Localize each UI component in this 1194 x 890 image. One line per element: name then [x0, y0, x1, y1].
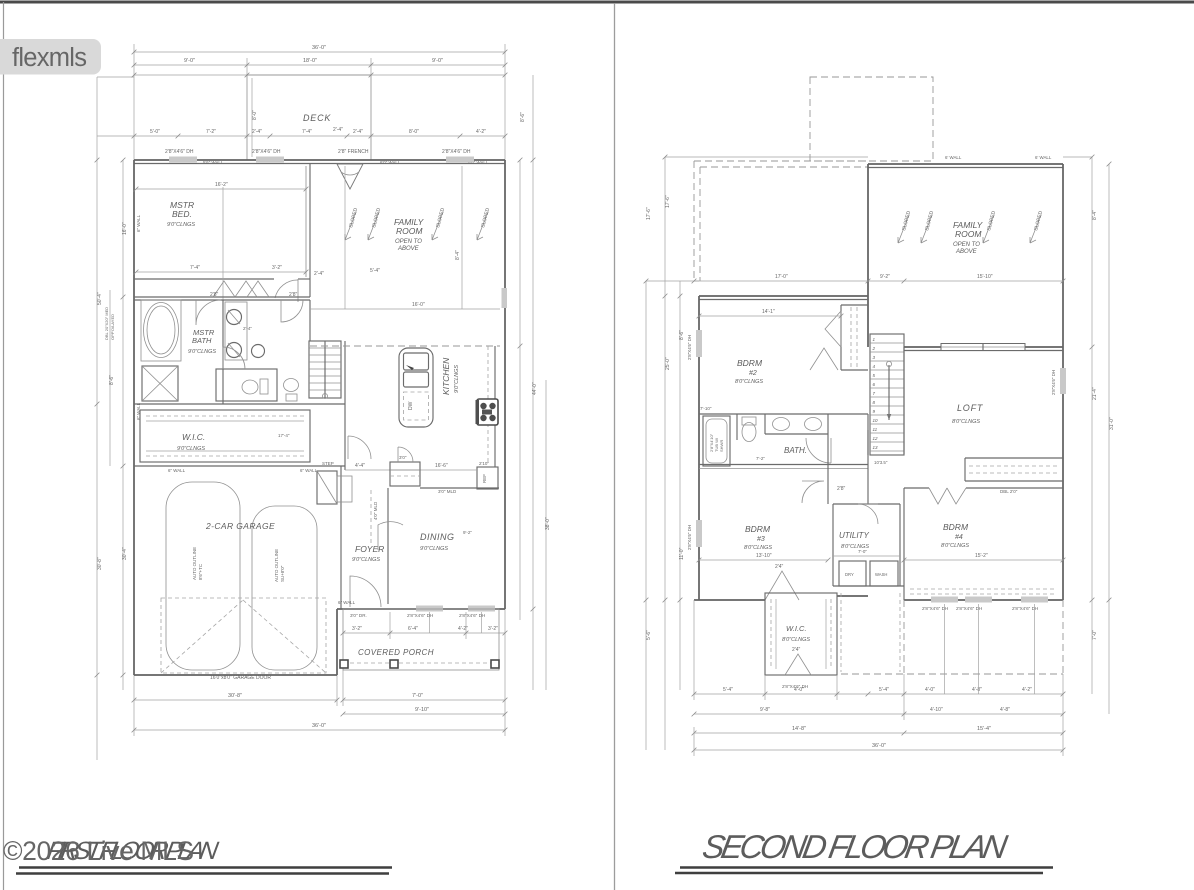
svg-text:BED.: BED. [172, 209, 192, 219]
svg-text:10: 10 [873, 418, 879, 423]
svg-text:STEP: STEP [322, 461, 334, 466]
svg-text:AUTO OUTLINE: AUTO OUTLINE [192, 547, 197, 580]
svg-text:7'-0": 7'-0" [412, 693, 423, 699]
svg-text:13: 13 [873, 445, 879, 450]
svg-text:5'-4": 5'-4" [723, 687, 733, 693]
svg-text:5'-6": 5'-6" [646, 630, 652, 640]
svg-text:7'-0": 7'-0" [858, 549, 867, 554]
svg-text:8'-0": 8'-0" [409, 129, 419, 135]
svg-text:50'-4": 50'-4" [97, 292, 103, 305]
svg-text:6" WALL: 6" WALL [168, 468, 186, 473]
svg-text:9'0"CLNGS: 9'0"CLNGS [352, 557, 380, 563]
svg-text:8'-6": 8'-6" [520, 112, 526, 122]
svg-text:2'-4": 2'-4" [243, 326, 252, 331]
svg-text:#4: #4 [955, 534, 963, 541]
svg-text:2'8" FRENCH: 2'8" FRENCH [338, 149, 369, 155]
svg-text:©2026 Live MLS: ©2026 Live MLS [3, 836, 194, 866]
svg-text:8'0"CLNGS: 8'0"CLNGS [735, 379, 763, 385]
svg-text:#3: #3 [757, 536, 765, 543]
svg-text:DW: DW [408, 401, 414, 410]
svg-text:2'4": 2'4" [775, 564, 784, 570]
svg-text:8'0"CLNGS: 8'0"CLNGS [744, 545, 772, 551]
svg-text:8'-0": 8'-0" [252, 110, 258, 120]
svg-text:6" WALL: 6" WALL [136, 402, 141, 420]
svg-text:4'-8": 4'-8" [972, 687, 982, 693]
svg-text:9'-0": 9'-0" [432, 58, 443, 64]
svg-text:6" WALL: 6" WALL [338, 600, 356, 605]
svg-text:44'-0": 44'-0" [532, 382, 538, 395]
svg-text:6' WALL: 6' WALL [945, 155, 962, 160]
svg-text:3'-2": 3'-2" [352, 626, 362, 632]
svg-text:2'-4": 2'-4" [252, 129, 262, 135]
svg-text:DINING: DINING [420, 532, 455, 542]
svg-text:17'-0": 17'-0" [775, 274, 788, 280]
svg-text:flexmls: flexmls [12, 44, 87, 72]
svg-text:18'-0": 18'-0" [303, 58, 317, 64]
svg-text:DECK: DECK [303, 113, 331, 123]
svg-text:ROOM: ROOM [955, 229, 982, 239]
svg-text:#2: #2 [749, 370, 757, 377]
svg-text:2'8"X4'6" DH: 2'8"X4'6" DH [165, 149, 194, 155]
svg-text:AUTO OUTLINE: AUTO OUTLINE [274, 549, 279, 582]
svg-text:25'-0": 25'-0" [665, 357, 671, 370]
svg-text:FOYER: FOYER [355, 544, 384, 554]
svg-text:BDRM: BDRM [745, 524, 771, 534]
svg-text:7'-2": 7'-2" [756, 456, 765, 461]
svg-text:2'8"X4'6" DH: 2'8"X4'6" DH [442, 149, 471, 155]
svg-text:DBL 2'0": DBL 2'0" [1000, 489, 1018, 494]
svg-text:4'-10": 4'-10" [930, 707, 943, 713]
svg-text:2'8"X4'6" DH: 2'8"X4'6" DH [1051, 370, 1056, 395]
svg-text:16'-2": 16'-2" [215, 182, 228, 188]
svg-text:3'-2": 3'-2" [272, 265, 282, 271]
svg-text:4'0" MLD: 4'0" MLD [373, 501, 378, 520]
svg-text:2'8"X4'6" DH: 2'8"X4'6" DH [687, 525, 692, 550]
svg-text:13'-10": 13'-10" [756, 553, 772, 559]
svg-text:2'8"X4'6" DH: 2'8"X4'6" DH [459, 613, 485, 618]
svg-text:9'-10": 9'-10" [415, 707, 429, 713]
svg-text:12: 12 [873, 436, 879, 441]
svg-text:17'-4": 17'-4" [278, 433, 290, 438]
svg-text:6'-4": 6'-4" [408, 626, 418, 632]
svg-text:W.I.C.: W.I.C. [182, 432, 205, 442]
svg-text:16'-0": 16'-0" [412, 302, 425, 308]
svg-text:7'-4": 7'-4" [302, 129, 312, 135]
svg-text:REF: REF [482, 474, 487, 483]
svg-text:WASH: WASH [875, 572, 887, 577]
svg-text:6" WALL: 6" WALL [136, 214, 141, 232]
svg-text:7'-2": 7'-2" [206, 129, 216, 135]
svg-text:11: 11 [873, 427, 878, 432]
svg-text:LOFT: LOFT [957, 403, 984, 413]
svg-text:11'-0": 11'-0" [679, 547, 685, 560]
svg-text:2'10": 2'10" [479, 461, 489, 466]
svg-text:W.I.C.: W.I.C. [786, 624, 807, 633]
svg-text:2'4": 2'4" [792, 647, 801, 653]
svg-text:21'-4": 21'-4" [1092, 387, 1098, 400]
svg-text:9'0"CLNGS: 9'0"CLNGS [188, 349, 216, 355]
svg-text:8'-6": 8'-6" [109, 375, 115, 385]
svg-text:2-CAR GARAGE: 2-CAR GARAGE [205, 521, 275, 531]
svg-text:2: 2 [872, 346, 876, 351]
svg-text:2'8": 2'8" [837, 486, 846, 492]
svg-text:15'-10": 15'-10" [977, 274, 993, 280]
svg-text:16'-0": 16'-0" [122, 222, 128, 235]
svg-text:4'-2": 4'-2" [476, 129, 486, 135]
svg-text:8'6"+TC: 8'6"+TC [198, 563, 203, 580]
svg-text:2'8": 2'8" [289, 292, 298, 298]
svg-text:ROOM: ROOM [396, 226, 423, 236]
svg-text:9'0"CLNGS: 9'0"CLNGS [454, 365, 460, 393]
svg-text:3'0": 3'0" [399, 455, 407, 460]
svg-text:9'0"CLNGS: 9'0"CLNGS [177, 446, 205, 452]
svg-text:DRY: DRY [845, 572, 854, 577]
svg-text:BATH: BATH [192, 336, 212, 345]
svg-text:6" WALL: 6" WALL [300, 468, 318, 473]
svg-text:3'-2": 3'-2" [488, 626, 498, 632]
svg-text:8'0"CLNGS: 8'0"CLNGS [782, 637, 810, 643]
svg-text:38'-0": 38'-0" [545, 517, 551, 530]
svg-text:9'0"CLNGS: 9'0"CLNGS [167, 222, 195, 228]
svg-text:5'-0": 5'-0" [150, 129, 160, 135]
svg-text:2'-4": 2'-4" [314, 271, 324, 277]
svg-text:4'-0": 4'-0" [925, 687, 935, 693]
svg-text:30'-4": 30'-4" [122, 547, 128, 560]
svg-text:8'0"CLNGS: 8'0"CLNGS [941, 543, 969, 549]
svg-text:4'-2": 4'-2" [458, 626, 468, 632]
svg-text:14'-1": 14'-1" [762, 309, 775, 315]
svg-text:4'-8": 4'-8" [1000, 707, 1010, 713]
svg-text:36'-0": 36'-0" [312, 45, 326, 51]
svg-text:8'-6": 8'-6" [679, 330, 685, 340]
svg-text:BATH.: BATH. [784, 446, 807, 455]
svg-text:14'-8": 14'-8" [792, 726, 806, 732]
svg-text:9'0"CLNGS: 9'0"CLNGS [420, 546, 448, 552]
svg-text:3'0" MLD: 3'0" MLD [438, 489, 457, 494]
svg-text:2'8"X4'6" DH: 2'8"X4'6" DH [687, 335, 692, 360]
svg-text:36'-0": 36'-0" [312, 723, 326, 729]
svg-text:9'-2": 9'-2" [880, 274, 890, 280]
svg-text:BDRM: BDRM [943, 522, 969, 532]
svg-text:17'-6": 17'-6" [646, 207, 652, 220]
svg-text:7'-4": 7'-4" [190, 265, 200, 271]
svg-text:SECOND FLOOR PLAN: SECOND FLOOR PLAN [700, 829, 1013, 866]
svg-text:OPEN TO: OPEN TO [953, 242, 980, 248]
svg-text:SU+8'0": SU+8'0" [280, 565, 285, 582]
svg-text:OPEN TO: OPEN TO [395, 239, 422, 245]
svg-text:5'-4": 5'-4" [879, 687, 889, 693]
svg-text:17'-6": 17'-6" [665, 195, 671, 208]
svg-text:2'8"X4'6" DH: 2'8"X4'6" DH [252, 149, 281, 155]
svg-text:30'-8": 30'-8" [228, 693, 242, 699]
svg-text:9'-0": 9'-0" [184, 58, 195, 64]
svg-text:15'-4": 15'-4" [977, 726, 991, 732]
svg-text:30'-8": 30'-8" [97, 557, 103, 570]
svg-text:9'-8": 9'-8" [760, 707, 770, 713]
svg-text:8'-4": 8'-4" [1092, 210, 1098, 220]
svg-text:2'-4": 2'-4" [353, 129, 363, 135]
svg-text:2'8"X4'6" DH: 2'8"X4'6" DH [407, 613, 433, 618]
svg-text:DBL 20"X20" MED: DBL 20"X20" MED [104, 307, 109, 340]
svg-text:BDRM: BDRM [737, 358, 763, 368]
svg-text:7'-10": 7'-10" [700, 406, 712, 411]
svg-text:2'8": 2'8" [210, 292, 219, 298]
svg-text:OPP'D/LAYED: OPP'D/LAYED [110, 314, 115, 340]
svg-text:10'3.5": 10'3.5" [874, 460, 888, 465]
svg-text:ABOVE: ABOVE [955, 249, 978, 255]
svg-text:SHWR: SHWR [719, 440, 724, 452]
svg-text:ABOVE: ABOVE [397, 246, 420, 252]
svg-text:15'-2": 15'-2" [975, 553, 988, 559]
svg-text:6' WALL: 6' WALL [1035, 155, 1052, 160]
svg-text:36'-0": 36'-0" [872, 743, 886, 749]
svg-text:3'0" DR.: 3'0" DR. [350, 613, 367, 618]
svg-text:8'-4": 8'-4" [455, 250, 461, 260]
svg-text:9'-2": 9'-2" [463, 530, 472, 535]
svg-text:16'-6": 16'-6" [435, 463, 448, 469]
svg-text:4'-4": 4'-4" [355, 463, 365, 469]
svg-text:5'-4": 5'-4" [370, 268, 380, 274]
svg-text:COVERED PORCH: COVERED PORCH [358, 648, 434, 657]
svg-text:UTILITY: UTILITY [839, 531, 869, 540]
svg-text:7'-0": 7'-0" [1092, 630, 1098, 640]
svg-text:4'-2": 4'-2" [1022, 687, 1032, 693]
svg-text:16'0"x8'0" GARAGE DOOR: 16'0"x8'0" GARAGE DOOR [210, 675, 271, 681]
svg-text:31'-0": 31'-0" [1109, 417, 1115, 430]
svg-text:8'0"CLNGS: 8'0"CLNGS [952, 419, 980, 425]
svg-text:4'-0": 4'-0" [794, 687, 804, 693]
svg-text:2'-4": 2'-4" [333, 127, 343, 133]
svg-text:KITCHEN: KITCHEN [441, 357, 451, 395]
